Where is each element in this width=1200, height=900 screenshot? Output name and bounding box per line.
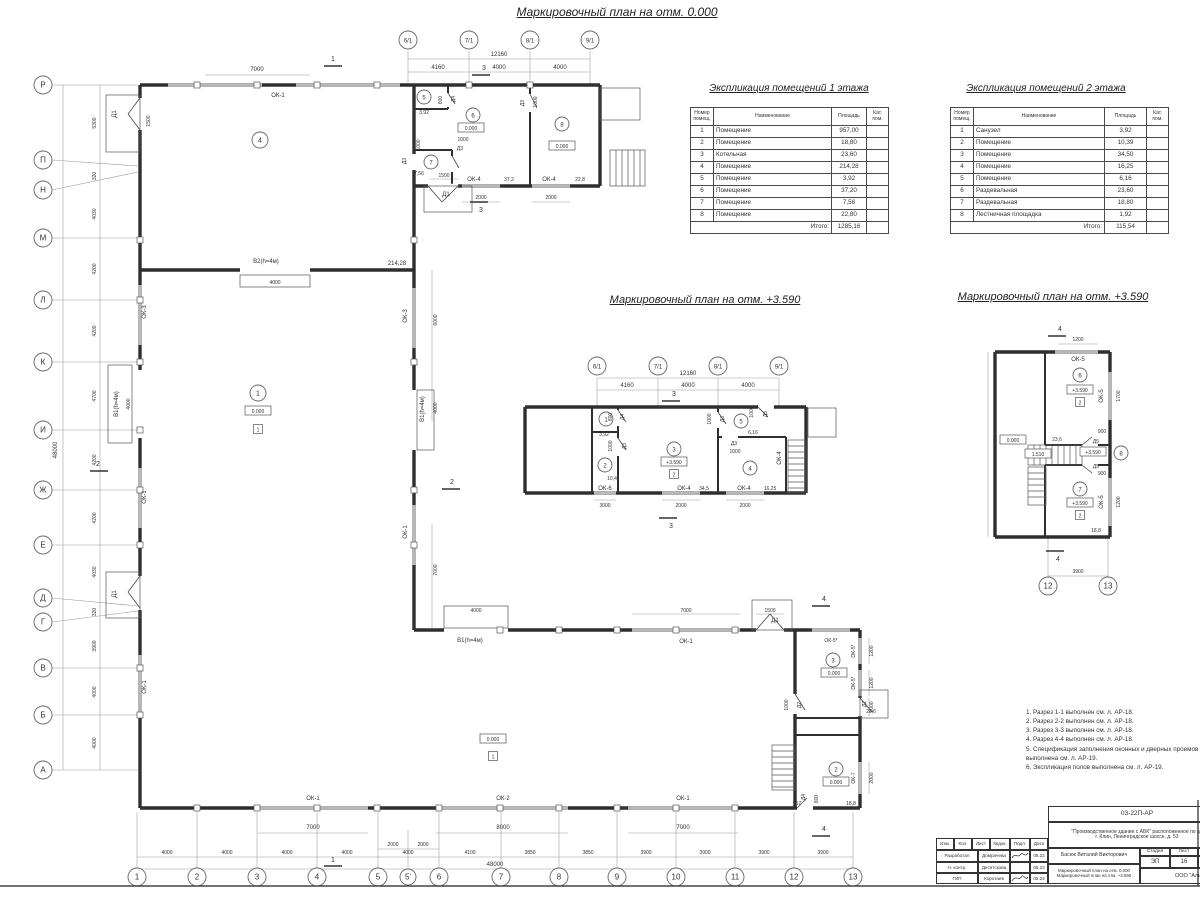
axis-label: 5 [376, 873, 381, 882]
total-label: Итого: [951, 222, 1105, 234]
cell-num: 3 [691, 150, 714, 162]
section-label: 1 [331, 56, 335, 63]
door-tag: Д5 [1093, 439, 1099, 445]
cell-cat [1147, 126, 1169, 138]
table-total-row: Итого:1285,16 [691, 222, 889, 234]
cell-num: 8 [951, 210, 974, 222]
dim-label: 3900 [758, 850, 769, 856]
level-mark: 0.000 [556, 144, 569, 150]
col-podp: Подл. [1010, 838, 1030, 850]
area-value: 34,5 [699, 486, 709, 492]
section-label: 3 [669, 523, 673, 530]
door-tag: Д3 [402, 158, 408, 164]
area-value: 6,16 [748, 430, 758, 436]
dim-label: 4160 [620, 383, 634, 389]
table-row: 5Помещение3,92 [691, 174, 889, 186]
table-header-row: Номер помещ.НаименованиеПлощадьКат. пом. [691, 108, 889, 126]
cell-name: Помещение [714, 186, 832, 198]
level-mark: +3.590 [1072, 388, 1088, 394]
dim-label: 7000 [676, 825, 690, 831]
section-label: 1 [331, 857, 335, 864]
level-mark: 1.510 [1032, 452, 1045, 458]
section-label: 4 [1056, 556, 1060, 563]
dim-label: 3900 [817, 850, 828, 856]
axis-label: 6 [437, 873, 442, 882]
dim-label: 4100 [464, 850, 475, 856]
cell-area: 957,00 [832, 126, 867, 138]
plan-title-3590-right: Маркировочный план на отм. +3.590 [893, 291, 1200, 303]
sheet-header: Лист [1170, 848, 1198, 856]
cell-cat [867, 222, 889, 234]
cell-area: 10,39 [1105, 138, 1147, 150]
floor-type-mark: 2 [673, 473, 676, 479]
name-developer: Домрачева [978, 850, 1010, 862]
table-row: 6Раздевальная23,60 [951, 186, 1169, 198]
plan-title-3590-mid: Маркировочный план на отм. +3.590 [545, 294, 865, 306]
cell-num: 4 [951, 162, 974, 174]
axis-label: Д [40, 594, 46, 603]
table-row: 5Помещение6,16 [951, 174, 1169, 186]
window-tag: ОК-6 [598, 486, 612, 492]
axis-label: 8/1 [714, 365, 723, 371]
dim-label: 4030 [92, 208, 98, 219]
porches-gates-stairs [106, 88, 1082, 790]
cell-cat [867, 126, 889, 138]
dim-label: 1700 [1116, 390, 1122, 401]
area-value: 3,92 [599, 432, 609, 438]
dim-label: 1500 [146, 115, 152, 126]
cell-name: Помещение [714, 198, 832, 210]
table-row: 4Помещение16,25 [951, 162, 1169, 174]
dim-label: 4000 [281, 850, 292, 856]
dim-label: 4000 [470, 608, 481, 614]
table-row: 7Раздевальная18,80 [951, 198, 1169, 210]
floor-type-mark: 2 [1079, 514, 1082, 520]
sheet-value: 16 [1170, 856, 1198, 868]
floor-type-mark: 2 [1079, 401, 1082, 407]
door-tag: Д3 [720, 416, 726, 422]
cell-name: Раздевальная [974, 198, 1105, 210]
header-cell: Наименование [714, 108, 832, 126]
note-item: 1. Разрез 1-1 выполнен см. л. АР-18. [1026, 708, 1200, 717]
axis-label: Ж [39, 486, 47, 495]
level-mark: +3.590 [1072, 501, 1088, 507]
axis-label: 7/1 [654, 365, 663, 371]
dim-label: 7000 [680, 608, 691, 614]
floor-type-mark: 1 [257, 428, 260, 434]
cell-name: Помещение [974, 150, 1105, 162]
dim-label: 3900 [1072, 569, 1083, 575]
level-mark: +3.590 [1085, 450, 1101, 456]
door-tag: Д1 [771, 618, 779, 624]
total-label: Итого: [691, 222, 832, 234]
cell-area: 18,80 [832, 138, 867, 150]
axis-label: 7 [499, 873, 504, 882]
dim-label: 4160 [431, 65, 445, 71]
dim-label: 5300 [92, 117, 98, 128]
floor-type-mark: 1 [492, 755, 495, 761]
project-name: "Производственное здание с АБК" располож… [1048, 822, 1200, 848]
cell-area: 34,50 [1105, 150, 1147, 162]
dim-label: 1200 [869, 677, 875, 688]
cell-name: Помещение [714, 138, 832, 150]
dim-label: 4000 [221, 850, 232, 856]
table-row: 2Помещение18,80 [691, 138, 889, 150]
cell-area: 23,60 [832, 150, 867, 162]
dim-label: 4000 [553, 65, 567, 71]
window-tag: ОК-4 [777, 451, 783, 465]
author-name: Басюк Виталий Викторович [1048, 848, 1140, 864]
cell-area: 22,80 [832, 210, 867, 222]
section-label: 3 [482, 65, 486, 72]
sheet-title-line2: Маркировочный план на отм. +3.590 [1057, 874, 1132, 879]
dim-label: 4000 [341, 850, 352, 856]
cell-cat [1147, 186, 1169, 198]
cell-cat [1147, 210, 1169, 222]
signature [1010, 862, 1030, 873]
window-tag: ОК-1 [676, 796, 690, 802]
dim-label: 4000 [269, 280, 280, 286]
cell-name: Помещение [714, 210, 832, 222]
cell-num: 7 [951, 198, 974, 210]
dim-label: 3900 [92, 640, 98, 651]
dim-label: 7000 [250, 67, 264, 73]
cell-name: Помещение [714, 162, 832, 174]
cell-area: 1,92 [1105, 210, 1147, 222]
door-tag: Д5 [763, 411, 769, 417]
dim-label: 3000 [599, 503, 610, 509]
axis-label: 6/1 [593, 365, 602, 371]
dim-label: 1000 [707, 413, 713, 424]
dim-label: 4700 [92, 390, 98, 401]
dim-label: 1000 [869, 701, 875, 712]
stage-header: Стадия [1140, 848, 1170, 856]
role-gip: ГИП [936, 873, 978, 884]
axis-label: 7/1 [465, 39, 474, 45]
gate-tag: В1(h=4м) [114, 391, 120, 417]
cell-num: 8 [691, 210, 714, 222]
axis-label: 9/1 [775, 365, 784, 371]
axis-label: 13 [849, 873, 858, 882]
axis-label: 12 [1044, 582, 1053, 591]
door-tag: Д4 [451, 96, 457, 102]
drawing-sheet: Р П Н М Л К И Ж Е Д Г В Б А 1 2 3 4 5 5'… [0, 0, 1200, 900]
cell-cat [1147, 162, 1169, 174]
structural-columns [137, 82, 738, 811]
room-schedule-floor1: Номер помещ.НаименованиеПлощадьКат. пом.… [690, 107, 889, 234]
date-gip: 05.22 [1030, 873, 1048, 884]
door-tag: Д3 [622, 443, 628, 449]
gate-tag: В1(h=4м) [457, 638, 483, 644]
area-value: 214,28 [388, 261, 407, 267]
dim-label: 1500 [764, 608, 775, 614]
dim-label: 4030 [92, 566, 98, 577]
table-row: 3Помещение34,50 [951, 150, 1169, 162]
axis-label: 11 [731, 873, 740, 882]
dim-label: 900 [1098, 429, 1107, 435]
window-tag: ОК-1 [142, 680, 148, 694]
axis-label: 9 [615, 873, 620, 882]
cell-num: 2 [691, 138, 714, 150]
door-tag: Д3 [520, 100, 526, 106]
door-tag: Д4 [620, 414, 626, 420]
cell-name: Помещение [974, 162, 1105, 174]
cell-num: 3 [951, 150, 974, 162]
cell-area: 23,60 [1105, 186, 1147, 198]
note-item: 2. Разрез 2-2 выполнен см. л. АР-18. [1026, 717, 1200, 726]
dim-label: 900 [1098, 471, 1107, 477]
header-cell: Кат. пом. [1147, 108, 1169, 126]
area-value: 23,6 [1052, 437, 1062, 443]
cell-area: 6,16 [1105, 174, 1147, 186]
dim-label: 2000 [869, 772, 875, 783]
name-gip: Коротаев [978, 873, 1010, 884]
door-tag: Д1 [442, 192, 450, 198]
axis-label: 2 [195, 873, 200, 882]
dim-label: 48000 [53, 441, 59, 458]
gate-tag: В1(h=4м) [420, 396, 426, 422]
area-value: 18,8 [1091, 528, 1101, 534]
axis-label: Г [41, 618, 46, 627]
cell-num: 1 [951, 126, 974, 138]
dim-label: 3900 [640, 850, 651, 856]
title-block: 03-22П-АР "Производственное здание с АБК… [936, 800, 1200, 884]
col-doc: №док. [990, 838, 1010, 850]
cell-cat [867, 186, 889, 198]
table-row: 6Помещение37,20 [691, 186, 889, 198]
note-item: 6. Экспликация полов выполнена см. л. АР… [1026, 763, 1200, 772]
section-label: 4 [1058, 326, 1062, 333]
dim-label: 2000 [545, 195, 556, 201]
cell-num: 5 [691, 174, 714, 186]
axis-label: К [41, 358, 46, 367]
role-checker: Н. контр. [936, 862, 978, 873]
axis-label: М [40, 234, 47, 243]
cell-name: Помещение [714, 126, 832, 138]
dim-label: 4000 [741, 383, 755, 389]
window-tag: ОК-3 [403, 309, 409, 323]
cell-num: 6 [951, 186, 974, 198]
cell-name: Котельная [714, 150, 832, 162]
axis-label: Н [40, 186, 46, 195]
axis-label: А [40, 766, 46, 775]
cell-cat [867, 198, 889, 210]
cell-cat [867, 210, 889, 222]
cell-num: 4 [691, 162, 714, 174]
cell-area: 214,28 [832, 162, 867, 174]
dim-label: 2000 [387, 842, 398, 848]
room-number: 4 [258, 138, 262, 145]
door-tag: Д3 [457, 146, 463, 152]
axis-label: И [40, 426, 46, 435]
area-value: 37,2 [504, 177, 514, 183]
room-number: 1 [256, 391, 260, 398]
dim-label: 4000 [492, 65, 506, 71]
dim-label: 2000 [417, 842, 428, 848]
stage-value: ЭП [1140, 856, 1170, 868]
gate-tag: В2(h=4м) [253, 259, 279, 265]
window-tag: ОК-5* [851, 676, 857, 689]
window-tag: ОК-4 [467, 177, 481, 183]
section-label: 2 [450, 479, 454, 486]
header-cell: Площадь [1105, 108, 1147, 126]
dim-label: 4000 [402, 850, 413, 856]
dim-label: 1000 [729, 449, 740, 455]
table-title-floor2: Экспликация помещений 2 этажа [886, 83, 1200, 94]
dim-label: 1000 [457, 137, 468, 143]
cell-cat [1147, 222, 1169, 234]
cell-cat [867, 174, 889, 186]
name-checker: Десятскова [978, 862, 1010, 873]
signature [1010, 873, 1030, 884]
col-kol: Кол. [954, 838, 972, 850]
table-total-row: Итого:115,54 [951, 222, 1169, 234]
dim-label: 1000 [784, 699, 790, 710]
dim-label: 4000 [161, 850, 172, 856]
table-row: 2Помещение10,39 [951, 138, 1169, 150]
dim-label: 1200 [869, 645, 875, 656]
door-tag: Д2 [862, 701, 868, 707]
window-tag: ОК-3 [142, 305, 148, 319]
dim-label: 7000 [306, 825, 320, 831]
header-cell: Кат. пом. [867, 108, 889, 126]
project-name-line2: г. Клин, Ленинградское шоссе, д. 53 [1095, 835, 1178, 841]
window-tag: ОК-4 [737, 486, 751, 492]
axis-label: 9/1 [586, 39, 595, 45]
sheet-title: Маркировочный план на отм. 0.000 Маркиро… [1048, 864, 1140, 884]
axis-label: 4 [315, 873, 320, 882]
level-mark: 0.000 [487, 737, 500, 743]
cell-num: 6 [691, 186, 714, 198]
area-value: 16,25 [764, 486, 777, 492]
cell-cat [1147, 150, 1169, 162]
dim-label: 12160 [680, 371, 697, 377]
notes-list: 1. Разрез 1-1 выполнен см. л. АР-18. 2. … [1026, 708, 1200, 772]
company-name: ООО "Аль [1140, 868, 1200, 884]
dim-label: 1000 [608, 440, 614, 451]
cell-name: Санузел [974, 126, 1105, 138]
cell-cat [1147, 174, 1169, 186]
role-developer: Разработал [936, 850, 978, 862]
door-tag: Д3 [731, 441, 737, 447]
level-mark: 0.000 [828, 671, 841, 677]
dim-label: 800 [608, 413, 614, 422]
cell-area: 3,92 [1105, 126, 1147, 138]
window-tag: ОК-1 [679, 639, 693, 645]
dim-label: 48000 [487, 862, 504, 868]
window-tag: ОК-4 [677, 486, 691, 492]
cell-cat [1147, 198, 1169, 210]
window-tag: ОК-2 [496, 796, 510, 802]
table-row: 4Помещение214,28 [691, 162, 889, 174]
cell-name: Помещение [714, 174, 832, 186]
header-cell: Наименование [974, 108, 1105, 126]
dim-label: 8000 [496, 825, 510, 831]
axis-label: 6/1 [404, 39, 413, 45]
dim-label: 800 [438, 96, 444, 105]
window-tag: ОК-4 [542, 177, 556, 183]
axis-label: П [40, 156, 46, 165]
table-row: 1Помещение957,00 [691, 126, 889, 138]
dim-label: 4000 [681, 383, 695, 389]
axis-label: 8/1 [526, 39, 535, 45]
axis-label: 13 [1104, 582, 1113, 591]
col-list: Лист [972, 838, 990, 850]
cell-area: 16,25 [1105, 162, 1147, 174]
axis-label: Л [40, 296, 45, 305]
dim-label: 320 [92, 172, 98, 181]
cell-name: Лестничная площадка [974, 210, 1105, 222]
dim-label: 2000 [675, 503, 686, 509]
dim-label: 7000 [433, 564, 439, 575]
area-value: 957 [793, 801, 802, 807]
window-tag: ОК-1 [403, 525, 409, 539]
window-tag: ОК-1 [271, 93, 285, 99]
dim-label: 4200 [92, 512, 98, 523]
dim-label: 2000 [475, 195, 486, 201]
cell-num: 2 [951, 138, 974, 150]
cell-area: 37,20 [832, 186, 867, 198]
note-item: 5. Спецификация заполнения оконных и две… [1026, 745, 1200, 763]
dim-label: 1000 [533, 96, 539, 107]
cell-cat [867, 162, 889, 174]
table-row: 1Санузел3,92 [951, 126, 1169, 138]
header-cell: Площадь [832, 108, 867, 126]
room-schedule-floor2: Номер помещ.НаименованиеПлощадьКат. пом.… [950, 107, 1169, 234]
area-value: 10,4 [607, 476, 617, 482]
document-number: 03-22П-АР [1048, 806, 1200, 822]
plan-title-0000: Маркировочный план на отм. 0.000 [457, 5, 777, 19]
axis-label: 8 [557, 873, 562, 882]
date-checker: 05.22 [1030, 862, 1048, 873]
cell-area: 7,56 [832, 198, 867, 210]
dim-label: 4200 [92, 263, 98, 274]
window-tag: ОК-5* [851, 644, 857, 657]
section-label: 4 [822, 596, 826, 603]
window-tag: ОК-5 [1099, 495, 1105, 509]
dim-label: 800 [814, 795, 820, 804]
level-mark: +3.590 [666, 460, 682, 466]
date-developer: 05.22 [1030, 850, 1048, 862]
cell-area: 3,92 [832, 174, 867, 186]
axis-label: 12 [790, 873, 799, 882]
window-tag: ОК-5 [1099, 389, 1105, 403]
axis-label: Б [40, 711, 45, 720]
window-tag: ОК-7 [851, 772, 857, 783]
dim-label: 1500 [438, 173, 449, 179]
col-izm: Изм. [936, 838, 954, 850]
cell-num: 7 [691, 198, 714, 210]
cell-cat [1147, 138, 1169, 150]
table-row: 3Котельная23,60 [691, 150, 889, 162]
dim-label: 12160 [491, 52, 508, 58]
cell-cat [867, 138, 889, 150]
window-tag: ОК-1 [142, 490, 148, 504]
section-label: 2 [96, 461, 100, 468]
total-value: 1285,16 [832, 222, 867, 234]
table-row: 8Помещение22,80 [691, 210, 889, 222]
dim-label: 3850 [582, 850, 593, 856]
door-tag: Д2 [797, 702, 803, 708]
cell-name: Раздевальная [974, 186, 1105, 198]
door-tag: Д1 [112, 110, 118, 118]
dim-label: 1200 [1072, 337, 1083, 343]
dim-label: 6000 [433, 314, 439, 325]
area-value: 3,92 [419, 110, 429, 116]
note-item: 4. Разрез 4-4 выполнен см. л. АР-18. [1026, 735, 1200, 744]
door-tag: Д4 [801, 794, 807, 800]
dim-label: 4000 [92, 737, 98, 748]
